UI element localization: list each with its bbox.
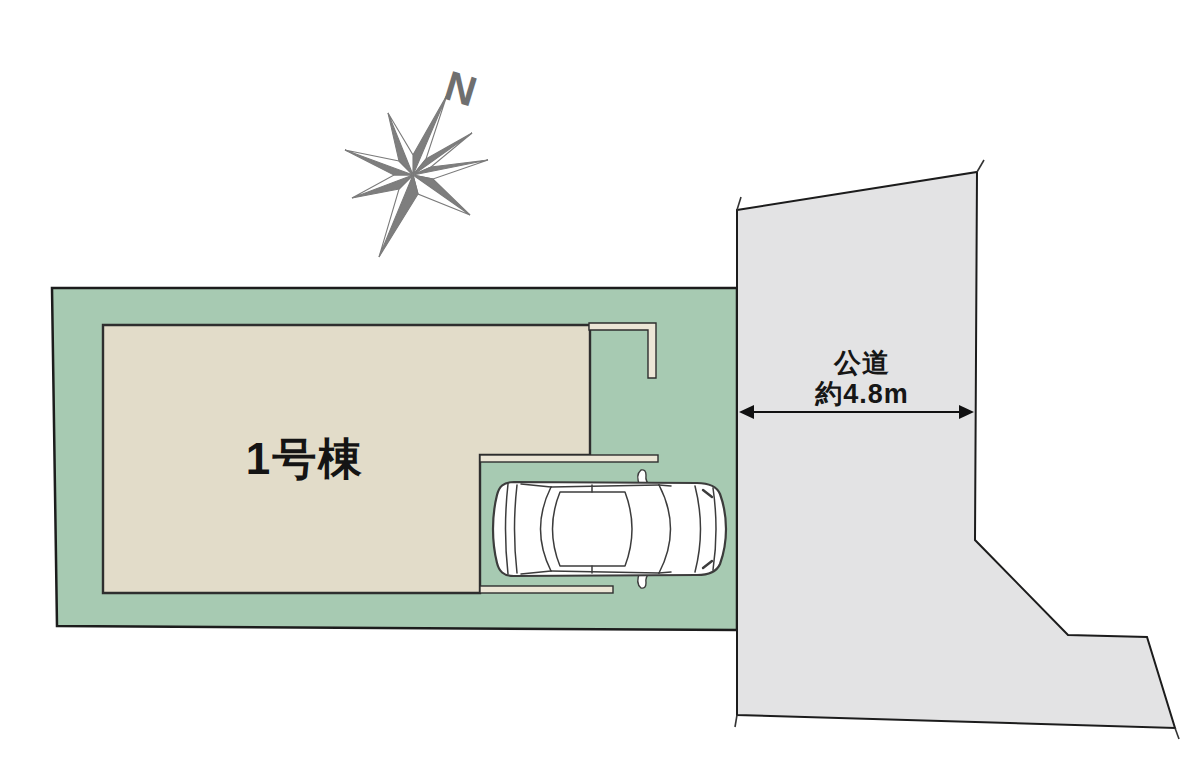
road-polygon <box>737 172 1175 728</box>
compass-arm <box>413 175 470 215</box>
road-area <box>735 160 1179 739</box>
eave-strip-carport-bottom <box>480 586 613 593</box>
road-name-label: 公道 <box>833 348 890 378</box>
boundary-tick-bottom-left <box>735 715 737 727</box>
boundary-tick-top-right <box>977 160 984 172</box>
building-label: 1号棟 <box>246 434 364 483</box>
car-top-view <box>493 470 726 588</box>
road-width-label: 約4.8m <box>814 379 909 409</box>
north-label: N <box>439 62 482 116</box>
site-plan-drawing: 公道 約4.8m 1号棟 N <box>0 0 1200 781</box>
car-a-pillar-top <box>659 485 671 486</box>
boundary-tick-top-left <box>737 197 741 210</box>
site-plan-page: 公道 約4.8m 1号棟 N <box>0 0 1200 781</box>
compass-rose: N <box>345 62 488 257</box>
boundary-tick-bottom-right <box>1175 728 1179 739</box>
car-a-pillar-bottom <box>659 572 671 573</box>
eave-strip-carport-top <box>480 455 658 462</box>
car-body <box>493 482 726 576</box>
